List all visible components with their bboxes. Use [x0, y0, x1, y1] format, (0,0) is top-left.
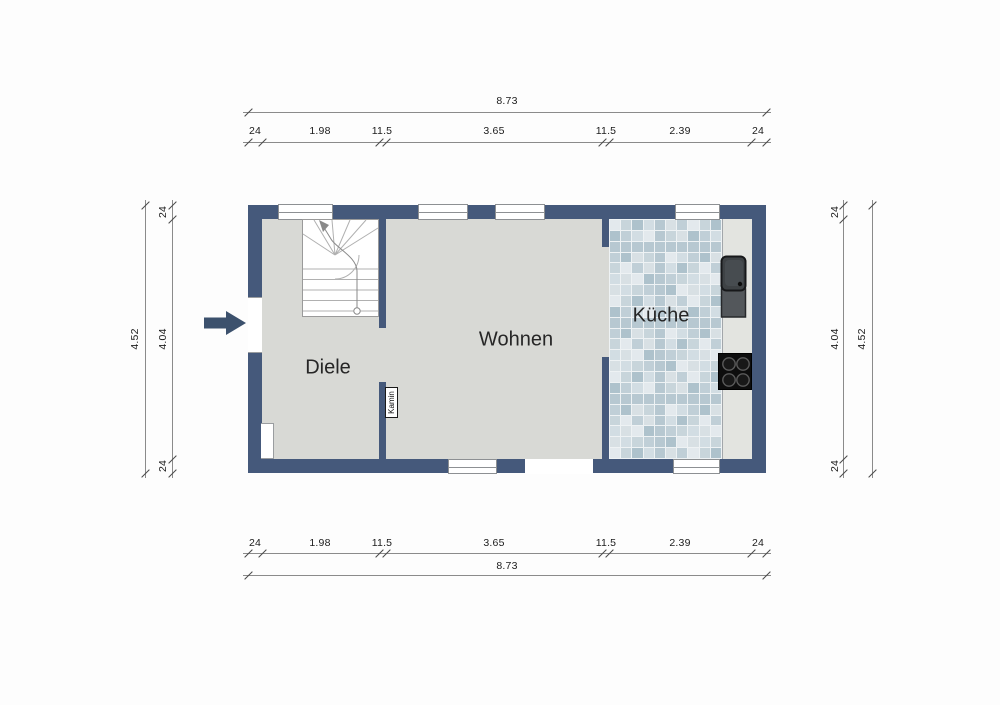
tile	[655, 383, 665, 393]
window	[418, 204, 468, 220]
tile	[644, 383, 654, 393]
tile	[688, 437, 698, 447]
tile	[677, 405, 687, 415]
window	[673, 459, 720, 474]
tile	[688, 372, 698, 382]
dim-label: 24	[829, 460, 841, 472]
tile	[677, 448, 687, 458]
dim-label: 2.39	[669, 537, 690, 549]
tile	[610, 274, 620, 284]
tile	[655, 220, 665, 230]
tile	[655, 405, 665, 415]
tile	[666, 448, 676, 458]
tile	[610, 231, 620, 241]
dim-label: 24	[752, 125, 764, 137]
dim-label: 24	[157, 460, 169, 472]
tile	[677, 383, 687, 393]
room-label-wohnen: Wohnen	[479, 329, 553, 352]
tile	[632, 361, 642, 371]
dim-label: 2.39	[669, 125, 690, 137]
tile	[666, 253, 676, 263]
dim-label: 3.65	[483, 537, 504, 549]
room-label-diele: Diele	[305, 357, 351, 380]
tile	[666, 220, 676, 230]
tile	[666, 416, 676, 426]
tile	[621, 231, 631, 241]
tile	[666, 361, 676, 371]
tile	[621, 339, 631, 349]
tile	[688, 220, 698, 230]
dim-label: 1.98	[309, 537, 330, 549]
door-jamb	[248, 352, 262, 353]
tile	[632, 416, 642, 426]
tile	[711, 426, 721, 436]
tile	[610, 405, 620, 415]
tile	[700, 220, 710, 230]
tile	[644, 405, 654, 415]
tile	[610, 296, 620, 306]
tile	[644, 426, 654, 436]
tile	[688, 448, 698, 458]
dim-label: 4.52	[129, 328, 141, 349]
tile	[700, 263, 710, 273]
tile	[700, 372, 710, 382]
partition-wohnen-kueche-upper	[602, 219, 609, 247]
tile	[610, 242, 620, 252]
dim-label: 11.5	[372, 125, 392, 137]
tile	[688, 231, 698, 241]
tile	[677, 426, 687, 436]
tile	[700, 448, 710, 458]
tile	[677, 274, 687, 284]
tile	[632, 285, 642, 295]
tile	[677, 263, 687, 273]
tile	[677, 350, 687, 360]
dim-label: 8.73	[496, 95, 517, 107]
tile	[610, 350, 620, 360]
dim-label: 24	[249, 537, 261, 549]
tile	[621, 372, 631, 382]
tile	[666, 350, 676, 360]
tile	[677, 394, 687, 404]
dim-label: 4.04	[829, 328, 841, 349]
tile	[700, 437, 710, 447]
dim-label: 24	[829, 206, 841, 218]
dim-label: 11.5	[372, 537, 392, 549]
dim-line	[243, 112, 771, 113]
tile	[610, 372, 620, 382]
tile	[655, 285, 665, 295]
tile	[677, 437, 687, 447]
tile	[621, 383, 631, 393]
tile	[644, 220, 654, 230]
floor-plan-canvas: 8.73 24 1.98 11.5 3.65 11.5 2.39 24 24 1…	[0, 0, 1000, 705]
dim-label: 3.65	[483, 125, 504, 137]
tile	[700, 253, 710, 263]
tile	[677, 231, 687, 241]
dim-line	[145, 200, 146, 478]
tile	[644, 339, 654, 349]
wall-niche	[261, 423, 274, 459]
tile	[688, 296, 698, 306]
tile	[677, 242, 687, 252]
tile	[666, 339, 676, 349]
window	[495, 204, 545, 220]
tile	[632, 339, 642, 349]
room-label-kueche: Küche	[633, 305, 690, 328]
tile	[688, 416, 698, 426]
tile	[610, 329, 620, 339]
tile	[621, 329, 631, 339]
tile	[666, 426, 676, 436]
tile	[655, 242, 665, 252]
tile	[688, 394, 698, 404]
partition-diele-wohnen-upper	[379, 219, 386, 328]
tile	[688, 339, 698, 349]
tile	[632, 437, 642, 447]
tile	[610, 285, 620, 295]
dim-label: 24	[157, 206, 169, 218]
tile	[632, 383, 642, 393]
tile	[610, 307, 620, 317]
tile	[688, 274, 698, 284]
tile	[655, 231, 665, 241]
tile	[621, 437, 631, 447]
tile	[610, 253, 620, 263]
tile	[621, 263, 631, 273]
tile	[621, 220, 631, 230]
tile	[666, 405, 676, 415]
tile	[632, 253, 642, 263]
dim-label: 11.5	[596, 125, 616, 137]
tile	[644, 274, 654, 284]
tile	[688, 383, 698, 393]
tile	[688, 405, 698, 415]
tile	[621, 242, 631, 252]
tile	[655, 253, 665, 263]
tile	[610, 394, 620, 404]
dim-label: 1.98	[309, 125, 330, 137]
tile	[666, 329, 676, 339]
tile	[711, 339, 721, 349]
tile	[677, 361, 687, 371]
tile	[655, 416, 665, 426]
tile	[644, 231, 654, 241]
dim-line	[172, 200, 173, 478]
tile	[655, 437, 665, 447]
partition-wohnen-kueche-lower	[602, 357, 609, 459]
dim-line	[243, 553, 771, 554]
tile	[666, 231, 676, 241]
tile	[610, 448, 620, 458]
dim-line	[843, 200, 844, 478]
tile	[621, 296, 631, 306]
tile	[621, 285, 631, 295]
tile	[644, 242, 654, 252]
tile	[644, 448, 654, 458]
tile	[632, 448, 642, 458]
tile	[666, 383, 676, 393]
tile	[688, 361, 698, 371]
tile	[644, 350, 654, 360]
tile	[666, 263, 676, 273]
tile	[632, 350, 642, 360]
tile	[621, 307, 631, 317]
tile	[644, 329, 654, 339]
tile	[666, 437, 676, 447]
tile	[677, 339, 687, 349]
kitchen-tile-floor	[609, 219, 722, 459]
tile	[666, 285, 676, 295]
tile	[700, 307, 710, 317]
tile	[621, 448, 631, 458]
tile	[700, 339, 710, 349]
tile	[666, 242, 676, 252]
tile	[644, 394, 654, 404]
tile	[621, 405, 631, 415]
tile	[700, 394, 710, 404]
tile	[666, 274, 676, 284]
tile	[700, 318, 710, 328]
tile	[632, 329, 642, 339]
dim-line	[243, 142, 771, 143]
tile	[711, 437, 721, 447]
kitchen-sink	[720, 255, 748, 319]
tile	[655, 394, 665, 404]
tile	[666, 394, 676, 404]
dim-label: 24	[752, 537, 764, 549]
tile	[610, 437, 620, 447]
tile	[688, 263, 698, 273]
wall-right	[752, 205, 766, 473]
tile	[688, 329, 698, 339]
tile	[700, 416, 710, 426]
tile	[644, 372, 654, 382]
tile	[688, 426, 698, 436]
tile	[700, 242, 710, 252]
tile	[700, 274, 710, 284]
staircase	[302, 219, 379, 317]
tile	[655, 448, 665, 458]
tile	[632, 426, 642, 436]
tile	[655, 339, 665, 349]
tile	[632, 220, 642, 230]
tile	[700, 231, 710, 241]
tile	[632, 372, 642, 382]
tile	[688, 350, 698, 360]
tile	[610, 361, 620, 371]
tile	[621, 350, 631, 360]
kamin-label: Kamin	[385, 387, 398, 418]
tile	[644, 361, 654, 371]
window	[448, 459, 497, 474]
tile	[621, 394, 631, 404]
tile	[621, 361, 631, 371]
tile	[655, 372, 665, 382]
tile	[711, 329, 721, 339]
tile	[632, 231, 642, 241]
tile	[700, 426, 710, 436]
tile	[711, 416, 721, 426]
tile	[610, 383, 620, 393]
tile	[677, 285, 687, 295]
tile	[610, 416, 620, 426]
tile	[621, 253, 631, 263]
tile	[644, 253, 654, 263]
tile	[700, 383, 710, 393]
tile	[610, 220, 620, 230]
tile	[655, 329, 665, 339]
tile	[621, 318, 631, 328]
tile	[700, 405, 710, 415]
tile	[621, 416, 631, 426]
tile	[688, 318, 698, 328]
tile	[644, 285, 654, 295]
window	[278, 204, 333, 220]
tile	[677, 329, 687, 339]
tile	[711, 448, 721, 458]
dim-label: 4.04	[157, 328, 169, 349]
tile	[677, 253, 687, 263]
tile	[677, 372, 687, 382]
tile	[700, 285, 710, 295]
tile	[655, 426, 665, 436]
tile	[700, 361, 710, 371]
tile	[632, 242, 642, 252]
dim-label: 24	[249, 125, 261, 137]
dim-line	[872, 200, 873, 478]
tile	[700, 296, 710, 306]
tile	[632, 394, 642, 404]
dim-label: 11.5	[596, 537, 616, 549]
tile	[711, 231, 721, 241]
tile	[610, 339, 620, 349]
tile	[655, 350, 665, 360]
tile	[700, 350, 710, 360]
tile	[666, 372, 676, 382]
entrance-arrow-icon	[203, 309, 248, 337]
tile	[644, 416, 654, 426]
tile	[621, 426, 631, 436]
tile	[711, 242, 721, 252]
dim-label: 8.73	[496, 560, 517, 572]
tile	[610, 426, 620, 436]
tile	[688, 307, 698, 317]
tile	[632, 405, 642, 415]
tile	[610, 318, 620, 328]
tile	[711, 220, 721, 230]
tile	[655, 274, 665, 284]
tile	[621, 274, 631, 284]
tile	[655, 263, 665, 273]
dim-label: 4.52	[856, 328, 868, 349]
door-jamb	[248, 297, 262, 298]
tile	[711, 405, 721, 415]
tile	[711, 318, 721, 328]
terrace-opening	[525, 459, 593, 474]
tile	[711, 394, 721, 404]
tile	[677, 416, 687, 426]
tile	[644, 437, 654, 447]
window	[675, 204, 720, 220]
tile	[688, 285, 698, 295]
tile	[655, 361, 665, 371]
tile	[632, 274, 642, 284]
tile	[644, 263, 654, 273]
entrance-door-opening	[248, 298, 262, 352]
tile	[632, 263, 642, 273]
tile	[610, 263, 620, 273]
tile	[700, 329, 710, 339]
tile	[688, 253, 698, 263]
tile	[688, 242, 698, 252]
tile	[677, 220, 687, 230]
stove-cooktop	[718, 353, 753, 391]
dim-line	[243, 575, 771, 576]
